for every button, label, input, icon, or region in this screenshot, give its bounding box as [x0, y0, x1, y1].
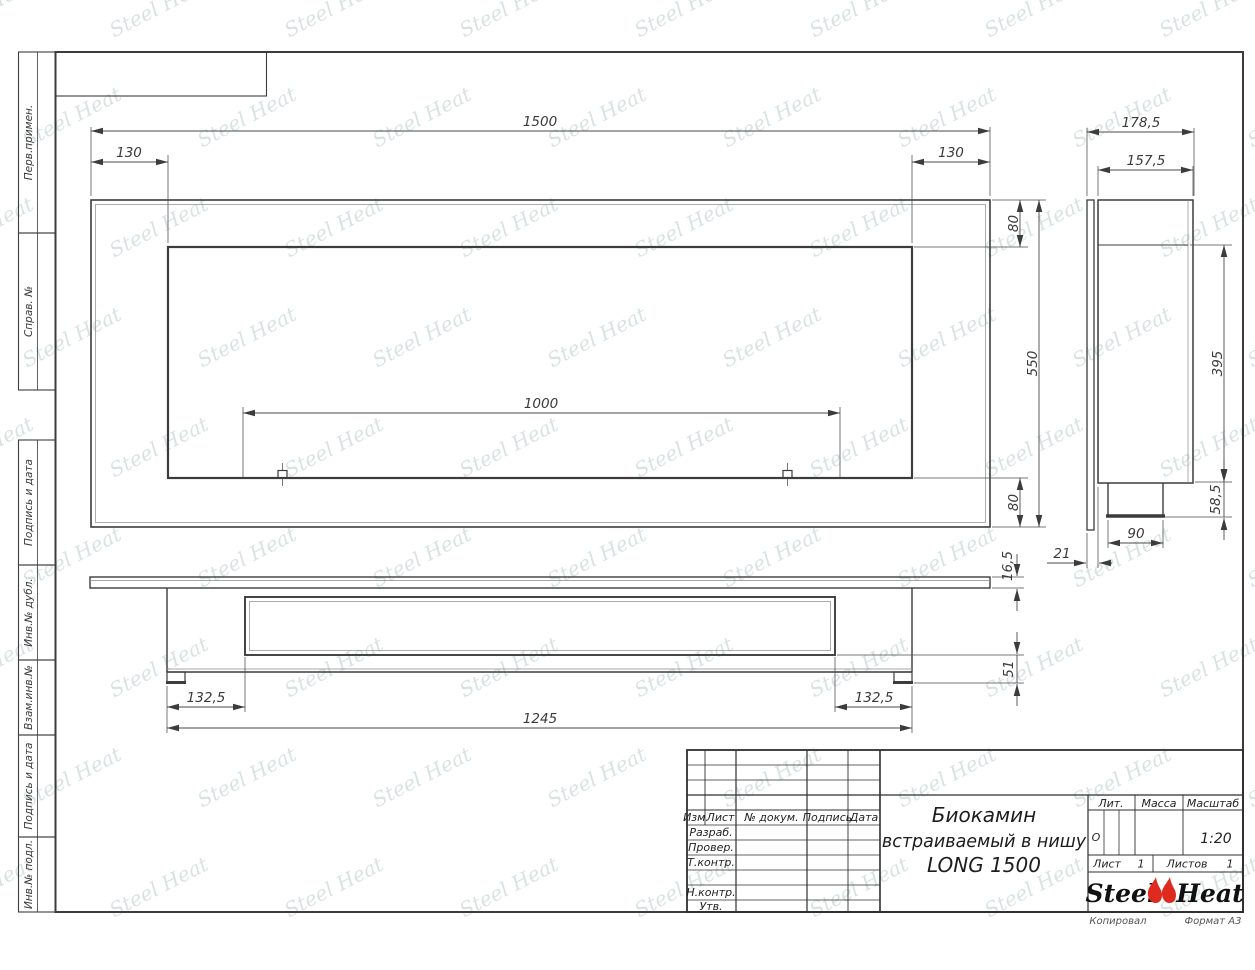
sheets-label: Листов	[1165, 858, 1207, 871]
col-data: Дата	[849, 811, 879, 824]
dim-side-burner-width: 90	[1127, 526, 1144, 542]
role-tkontr: Т.контр.	[687, 856, 735, 869]
dim-bottom-plate: 16,5	[1000, 551, 1016, 581]
dim-bottom-front: 51	[1001, 660, 1017, 677]
scale-value: 1:20	[1200, 831, 1232, 847]
lit-value: О	[1092, 831, 1101, 844]
margin-label: Взам.инв.№	[23, 665, 35, 730]
brand-logo: Steel Heat	[1086, 877, 1245, 908]
front-view: 1500 130 130 1000 80 550	[91, 114, 1046, 527]
dim-front-total: 1500	[523, 114, 557, 130]
side-burner-block	[1106, 483, 1165, 516]
lit-header: Лит.	[1097, 797, 1123, 810]
role-nkontr: Н.контр.	[686, 886, 735, 899]
sheets-value: 1	[1227, 858, 1234, 871]
margin-label: Справ. №	[23, 286, 35, 337]
doc-title-line1: Биокамин	[932, 803, 1036, 827]
burner-tab-right	[783, 463, 792, 486]
foot-right	[893, 672, 913, 683]
title-block: Изм. Лист № докум. Подпись Дата Разраб. …	[683, 750, 1244, 913]
doc-title-line2: встраиваемый в нишу	[882, 832, 1087, 852]
scale-header: Масштаб	[1187, 797, 1239, 810]
dim-front-burner: 1000	[524, 396, 558, 412]
dim-side-body-depth: 157,5	[1127, 153, 1166, 169]
foot-left	[166, 672, 186, 683]
bottom-slot	[245, 597, 835, 655]
margin-column: Перв.примен. Справ. № Подпись и дата Инв…	[19, 52, 56, 912]
footer-format: Формат А3	[1185, 916, 1242, 927]
dim-bottom-left: 132,5	[187, 690, 226, 706]
margin-label: Перв.примен.	[23, 105, 35, 180]
col-list: Лист	[706, 811, 735, 824]
dim-front-top: 80	[1006, 215, 1022, 232]
front-opening	[168, 247, 912, 478]
top-left-stamp-box	[56, 52, 267, 96]
footer-copy: Копировал	[1089, 916, 1147, 927]
margin-label: Инв.№ подл.	[23, 840, 35, 909]
bottom-plate	[90, 577, 990, 588]
doc-title-line3: LONG 1500	[927, 853, 1041, 877]
dim-front-left: 130	[116, 145, 142, 161]
margin-label: Инв.№ дубл.	[23, 578, 35, 647]
burner-tab-left	[278, 463, 287, 486]
role-utv: Утв.	[699, 900, 722, 913]
margin-label: Подпись и дата	[23, 743, 35, 830]
margin-label: Подпись и дата	[23, 459, 35, 546]
role-razrab: Разраб.	[689, 826, 732, 839]
dim-side-niche-height: 395	[1210, 351, 1226, 377]
dim-front-height: 550	[1025, 351, 1041, 377]
engineering-drawing: Перв.примен. Справ. № Подпись и дата Инв…	[0, 0, 1255, 970]
mass-header: Масса	[1141, 797, 1176, 810]
role-prover: Провер.	[688, 841, 734, 854]
side-body	[1098, 200, 1193, 483]
col-izm: Изм.	[683, 811, 709, 824]
dim-front-bottom: 80	[1006, 494, 1022, 511]
side-flange	[1087, 200, 1094, 530]
drawing-sheet: Steel HeatSteel HeatSteel HeatSteel Heat…	[0, 0, 1255, 970]
logo-text-left: Steel	[1086, 879, 1157, 908]
dim-side-total-depth: 178,5	[1122, 115, 1161, 131]
dim-side-burner-drop: 58,5	[1208, 484, 1224, 514]
bottom-view: 16,5 51 132,5 132,5 1245	[90, 551, 1024, 733]
dim-bottom-body-width: 1245	[523, 711, 557, 727]
dim-front-right: 130	[938, 145, 964, 161]
logo-text-right: Heat	[1175, 879, 1244, 908]
col-ndocum: № докум.	[743, 811, 798, 824]
dim-side-flange-offset: 21	[1053, 546, 1070, 562]
dim-bottom-right: 132,5	[855, 690, 894, 706]
sheet-label: Лист	[1092, 858, 1121, 871]
side-view: 178,5 157,5 395 58,5 90	[1047, 115, 1232, 568]
sheet-value: 1	[1138, 858, 1145, 871]
drawing-frame	[56, 52, 1244, 912]
col-podpis: Подпись	[803, 811, 852, 824]
